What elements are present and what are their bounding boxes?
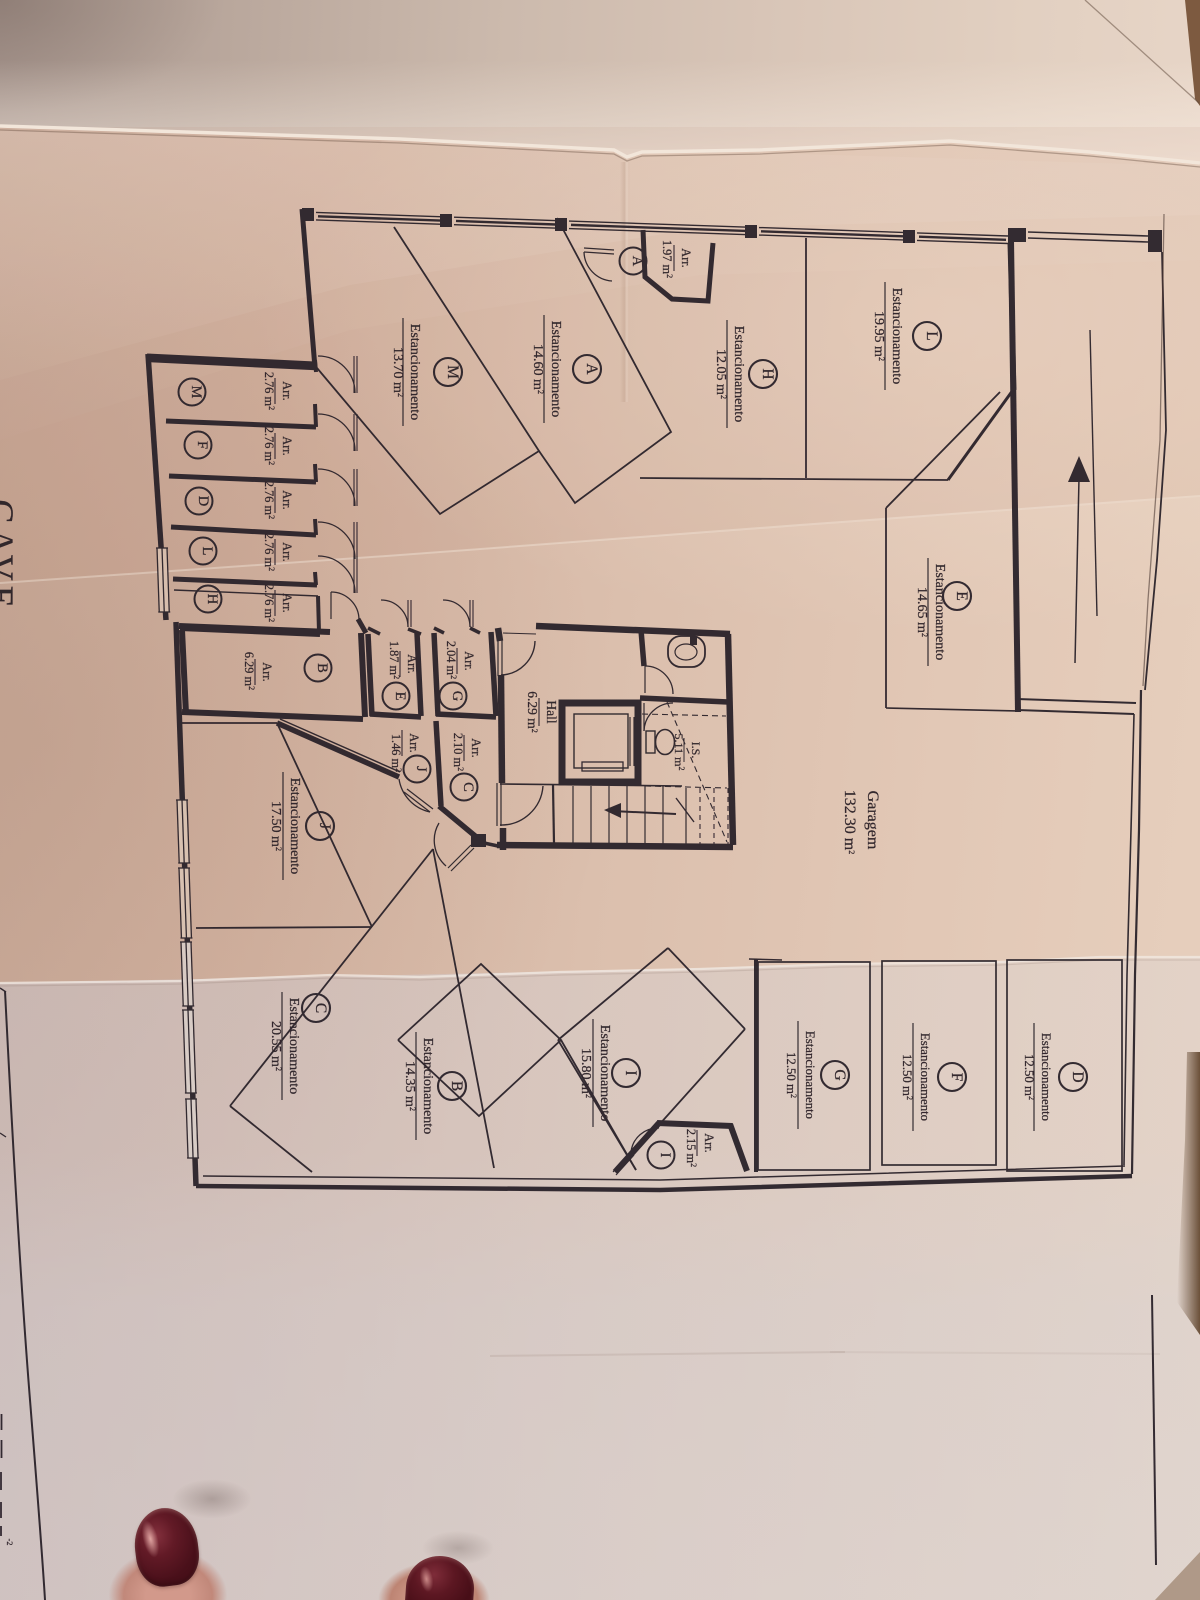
svg-text:J: J [413,766,429,772]
svg-text:E: E [953,591,970,600]
svg-text:E: E [392,692,408,701]
svg-text:6.29 m2: 6.29 m2 [242,652,257,690]
svg-text:L: L [923,331,940,340]
svg-text:Estancionamento: Estancionamento [420,1038,435,1134]
svg-text:G: G [449,691,465,702]
svg-text:I: I [622,1070,639,1075]
svg-text:Estancionamento: Estancionamento [597,1025,612,1121]
svg-text:B: B [448,1081,465,1091]
svg-text:Arr.: Arr. [280,542,294,561]
svg-text:1.97 m2: 1.97 m2 [660,240,675,278]
svg-text:12.50 m2: 12.50 m2 [900,1054,915,1100]
svg-text:2.04 m2: 2.04 m2 [444,641,459,679]
svg-text:F: F [948,1073,965,1082]
svg-text:H: H [204,594,220,605]
svg-text:Estancionamento: Estancionamento [1039,1033,1053,1121]
svg-text:Estancionamento: Estancionamento [286,998,301,1094]
svg-text:M: M [444,365,461,379]
svg-text:B: B [314,663,330,673]
svg-text:6.29 m2: 6.29 m2 [525,691,540,733]
svg-text:Estancionamento: Estancionamento [803,1031,817,1119]
svg-text:2.10 m2: 2.10 m2 [451,733,466,771]
svg-text:Arr.: Arr. [407,733,421,752]
svg-text:1.87 m2: 1.87 m2 [387,641,402,679]
svg-text:Arr.: Arr. [462,651,476,670]
svg-text:H: H [759,368,776,379]
svg-text:132.30 m2: 132.30 m2 [841,790,858,854]
svg-text:2.76 m2: 2.76 m2 [262,533,277,571]
svg-text:Arr.: Arr. [280,381,294,400]
svg-text:Estancionamento: Estancionamento [932,564,947,660]
svg-text:5.11 m2: 5.11 m2 [672,734,687,771]
svg-text:Estancionamento: Estancionamento [287,778,302,874]
svg-text:L: L [199,547,215,556]
svg-text:12.05 m2: 12.05 m2 [713,349,729,399]
svg-text:Arr.: Arr. [469,738,483,757]
svg-text:Arr.: Arr. [280,436,294,455]
svg-text:-2: -2 [5,1539,14,1546]
svg-text:C: C [460,782,476,792]
svg-text:2.76 m2: 2.76 m2 [262,584,277,622]
svg-text:2.76 m2: 2.76 m2 [262,427,277,465]
svg-text:Estancionamento: Estancionamento [918,1033,932,1121]
svg-text:2.15 m2: 2.15 m2 [684,1129,699,1167]
svg-text:14.60 m2: 14.60 m2 [530,344,546,394]
svg-text:F: F [194,441,210,449]
svg-text:17.50 m2: 17.50 m2 [268,801,284,851]
svg-text:Estancionamento: Estancionamento [407,324,422,420]
svg-text:A: A [629,256,645,267]
svg-text:12.50 m2: 12.50 m2 [1022,1054,1037,1100]
svg-text:Arr.: Arr. [280,490,294,509]
svg-text:19.95 m2: 19.95 m2 [871,311,887,361]
svg-text:D: D [1069,1071,1086,1082]
svg-text:Estancionamento: Estancionamento [548,321,563,417]
svg-text:Arr.: Arr. [679,248,693,267]
svg-text:C: C [312,1003,329,1013]
svg-text:Hall: Hall [544,700,559,723]
svg-text:14.35 m2: 14.35 m2 [402,1061,418,1111]
svg-text:I: I [657,1153,673,1158]
svg-text:CAVE: CAVE [0,499,21,612]
svg-text:J: J [316,823,333,829]
svg-text:Arr.: Arr. [260,662,274,681]
svg-text:G: G [831,1069,848,1080]
svg-text:Arr.: Arr. [280,593,294,612]
svg-text:13.70 m2: 13.70 m2 [390,347,406,397]
svg-text:Estancionamento: Estancionamento [731,326,746,422]
svg-text:1.46 m2: 1.46 m2 [389,734,404,772]
svg-text:20.55 m2: 20.55 m2 [268,1021,284,1071]
svg-text:15.80 m2: 15.80 m2 [578,1048,594,1098]
svg-text:2.76 m2: 2.76 m2 [262,481,277,519]
svg-text:2.76 m2: 2.76 m2 [262,372,277,410]
svg-text:Arr.: Arr. [405,654,419,673]
svg-text:Estancionamento: Estancionamento [889,288,904,384]
svg-text:A: A [583,363,600,375]
svg-text:I.S.: I.S. [689,742,703,759]
svg-text:14.65 m2: 14.65 m2 [914,587,930,637]
svg-text:M: M [188,386,204,399]
svg-text:Arr.: Arr. [702,1133,716,1152]
svg-text:Garagem: Garagem [864,791,881,850]
svg-text:D: D [195,496,211,506]
svg-text:12.50 m2: 12.50 m2 [784,1052,799,1098]
